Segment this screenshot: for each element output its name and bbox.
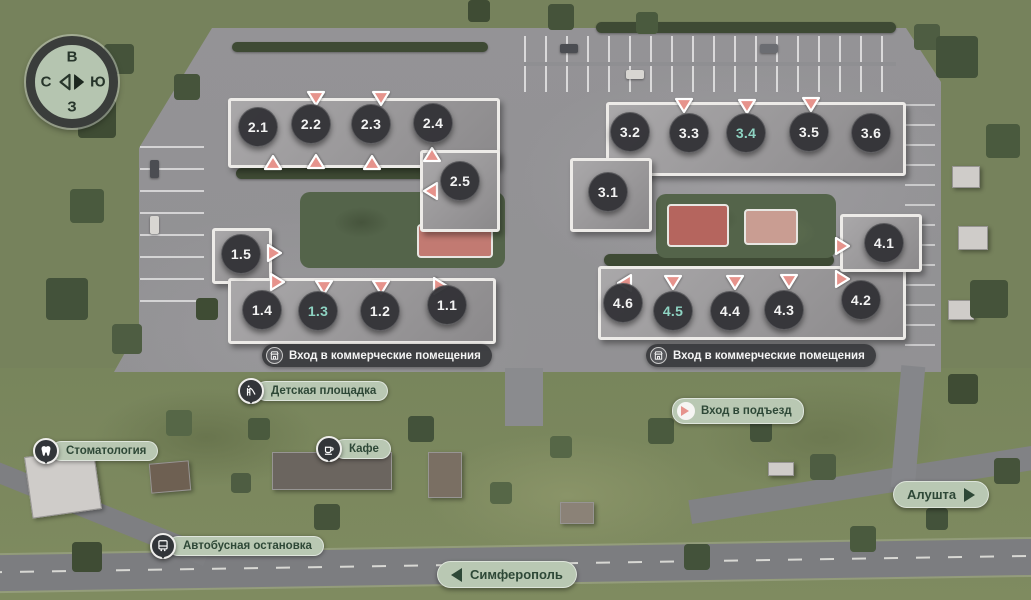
label-bus-stop: Автобусная остановка xyxy=(168,536,324,556)
building-marker-1.1[interactable]: 1.1 xyxy=(427,285,467,325)
tooth-icon xyxy=(33,438,59,464)
entrance-marker xyxy=(422,181,440,201)
entrance-marker xyxy=(306,153,326,171)
building-marker-2.5[interactable]: 2.5 xyxy=(440,161,480,201)
entrance-marker xyxy=(265,243,283,263)
compass-letter-left: С xyxy=(41,74,52,91)
compass-needle-icon xyxy=(59,73,86,91)
entrance-marker xyxy=(268,272,286,292)
label-cafe: Кафе xyxy=(334,439,391,459)
entrance-marker xyxy=(422,146,442,164)
entrance-marker xyxy=(263,154,283,172)
entrance-marker xyxy=(674,96,694,114)
compass-letter-bottom: З xyxy=(67,99,76,116)
label-text: Вход в подъезд xyxy=(701,405,792,417)
markers-layer: 2.12.22.32.42.51.51.41.31.21.13.13.23.33… xyxy=(0,0,1031,600)
storefront-icon xyxy=(266,347,283,364)
compass-letter-top: В xyxy=(67,48,78,65)
building-marker-4.4[interactable]: 4.4 xyxy=(710,291,750,331)
building-marker-1.2[interactable]: 1.2 xyxy=(360,291,400,331)
building-marker-4.6[interactable]: 4.6 xyxy=(603,283,643,323)
building-marker-4.5[interactable]: 4.5 xyxy=(653,291,693,331)
building-marker-1.5[interactable]: 1.5 xyxy=(221,234,261,274)
building-marker-3.1[interactable]: 3.1 xyxy=(588,172,628,212)
label-dentistry: Стоматология xyxy=(51,441,158,461)
building-marker-3.2[interactable]: 3.2 xyxy=(610,112,650,152)
label-commercial-entrance-right: Вход в коммерческие помещения xyxy=(646,344,876,367)
building-marker-3.3[interactable]: 3.3 xyxy=(669,113,709,153)
label-entrance-legend: Вход в подъезд xyxy=(672,398,804,424)
poi-dentistry: Стоматология xyxy=(33,438,158,464)
storefront-icon xyxy=(650,347,667,364)
roadsign-simferopol: Симферополь xyxy=(437,561,577,588)
roadsign-text: Симферополь xyxy=(470,567,563,582)
building-marker-1.3[interactable]: 1.3 xyxy=(298,291,338,331)
entrance-marker xyxy=(801,95,821,113)
label-commercial-entrance-left: Вход в коммерческие помещения xyxy=(262,344,492,367)
arrow-left-icon xyxy=(451,568,462,582)
roadsign-alushta: Алушта xyxy=(893,481,989,508)
building-marker-2.1[interactable]: 2.1 xyxy=(238,107,278,147)
roadsign-text: Алушта xyxy=(907,487,956,502)
poi-playground: Детская площадка xyxy=(238,378,388,404)
poi-bus-stop: Автобусная остановка xyxy=(150,533,324,559)
entrance-triangle-icon xyxy=(677,402,695,420)
coffee-cup-icon xyxy=(316,436,342,462)
building-marker-2.2[interactable]: 2.2 xyxy=(291,104,331,144)
label-text: Вход в коммерческие помещения xyxy=(289,350,481,362)
compass: В С Ю З xyxy=(26,36,118,128)
arrow-right-icon xyxy=(964,488,975,502)
entrance-marker xyxy=(779,272,799,290)
building-marker-3.4[interactable]: 3.4 xyxy=(726,113,766,153)
label-text: Вход в коммерческие помещения xyxy=(673,350,865,362)
building-marker-2.4[interactable]: 2.4 xyxy=(413,103,453,143)
entrance-marker xyxy=(833,236,851,256)
building-marker-2.3[interactable]: 2.3 xyxy=(351,104,391,144)
masterplan-map: 2.12.22.32.42.51.51.41.31.21.13.13.23.33… xyxy=(0,0,1031,600)
poi-cafe: Кафе xyxy=(316,436,391,462)
building-marker-4.2[interactable]: 4.2 xyxy=(841,280,881,320)
building-marker-3.5[interactable]: 3.5 xyxy=(789,112,829,152)
entrance-marker xyxy=(725,273,745,291)
entrance-marker xyxy=(663,273,683,291)
playground-slide-icon xyxy=(238,378,264,404)
building-marker-3.6[interactable]: 3.6 xyxy=(851,113,891,153)
building-marker-4.1[interactable]: 4.1 xyxy=(864,223,904,263)
building-marker-4.3[interactable]: 4.3 xyxy=(764,290,804,330)
building-marker-1.4[interactable]: 1.4 xyxy=(242,290,282,330)
entrance-marker xyxy=(362,154,382,172)
compass-letter-right: Ю xyxy=(90,74,105,91)
label-playground: Детская площадка xyxy=(256,381,388,401)
bus-icon xyxy=(150,533,176,559)
